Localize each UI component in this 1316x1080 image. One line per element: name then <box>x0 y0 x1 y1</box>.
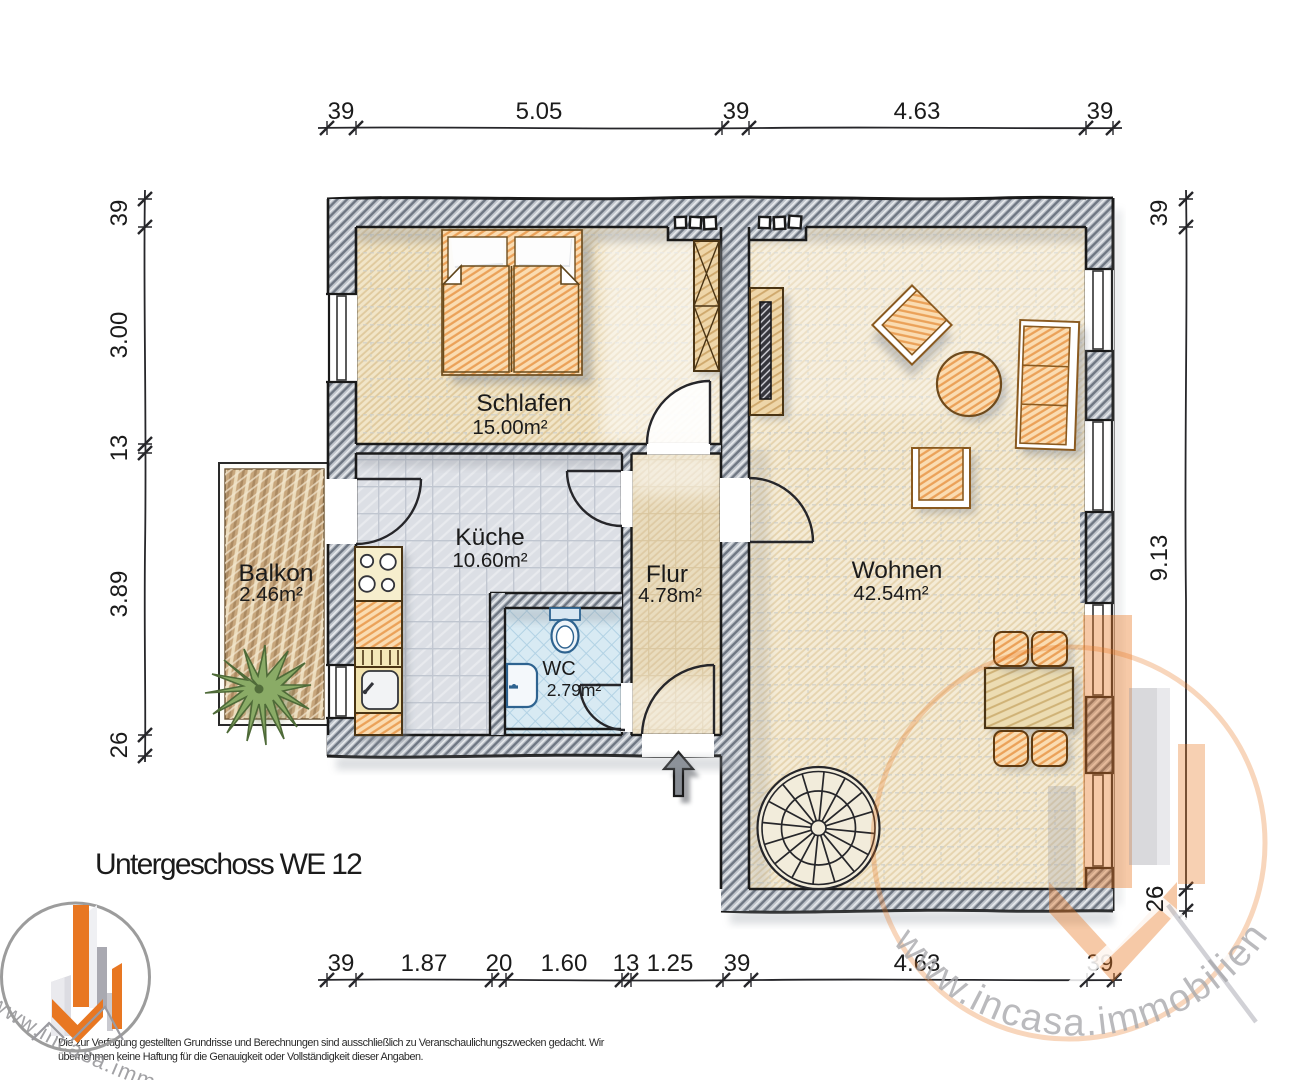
svg-text:13: 13 <box>106 435 133 462</box>
svg-text:1.60: 1.60 <box>541 950 588 977</box>
svg-text:26: 26 <box>1142 886 1169 913</box>
svg-text:39: 39 <box>724 950 751 977</box>
svg-text:4.63: 4.63 <box>894 98 941 125</box>
svg-text:15.00m²: 15.00m² <box>472 416 547 439</box>
svg-text:Küche: Küche <box>455 524 524 551</box>
svg-text:4.78m²: 4.78m² <box>638 584 702 607</box>
svg-text:1.87: 1.87 <box>401 950 448 977</box>
svg-text:39: 39 <box>1087 98 1114 125</box>
svg-text:39: 39 <box>106 200 133 227</box>
svg-text:1.25: 1.25 <box>647 950 694 977</box>
svg-text:Wohnen: Wohnen <box>852 557 943 584</box>
svg-text:2.46m²: 2.46m² <box>239 583 303 606</box>
svg-text:Untergeschoss WE 12: Untergeschoss WE 12 <box>95 848 362 881</box>
svg-text:WC: WC <box>542 658 575 680</box>
svg-text:Die zur Verfügung gestellten G: Die zur Verfügung gestellten Grundrisse … <box>58 1037 605 1049</box>
svg-text:10.60m²: 10.60m² <box>452 549 527 572</box>
svg-text:2.79m²: 2.79m² <box>547 680 602 700</box>
svg-text:39: 39 <box>1146 200 1173 227</box>
svg-text:39: 39 <box>723 98 750 125</box>
svg-text:3.00: 3.00 <box>106 312 133 359</box>
svg-text:39: 39 <box>328 98 355 125</box>
svg-text:9.13: 9.13 <box>1146 535 1173 582</box>
svg-text:3.89: 3.89 <box>106 571 133 618</box>
svg-text:5.05: 5.05 <box>516 98 563 125</box>
svg-text:39: 39 <box>328 950 355 977</box>
svg-text:42.54m²: 42.54m² <box>853 582 928 605</box>
svg-text:Schlafen: Schlafen <box>476 390 571 417</box>
svg-text:20: 20 <box>486 950 513 977</box>
svg-text:26: 26 <box>106 732 133 759</box>
svg-text:13: 13 <box>613 950 640 977</box>
